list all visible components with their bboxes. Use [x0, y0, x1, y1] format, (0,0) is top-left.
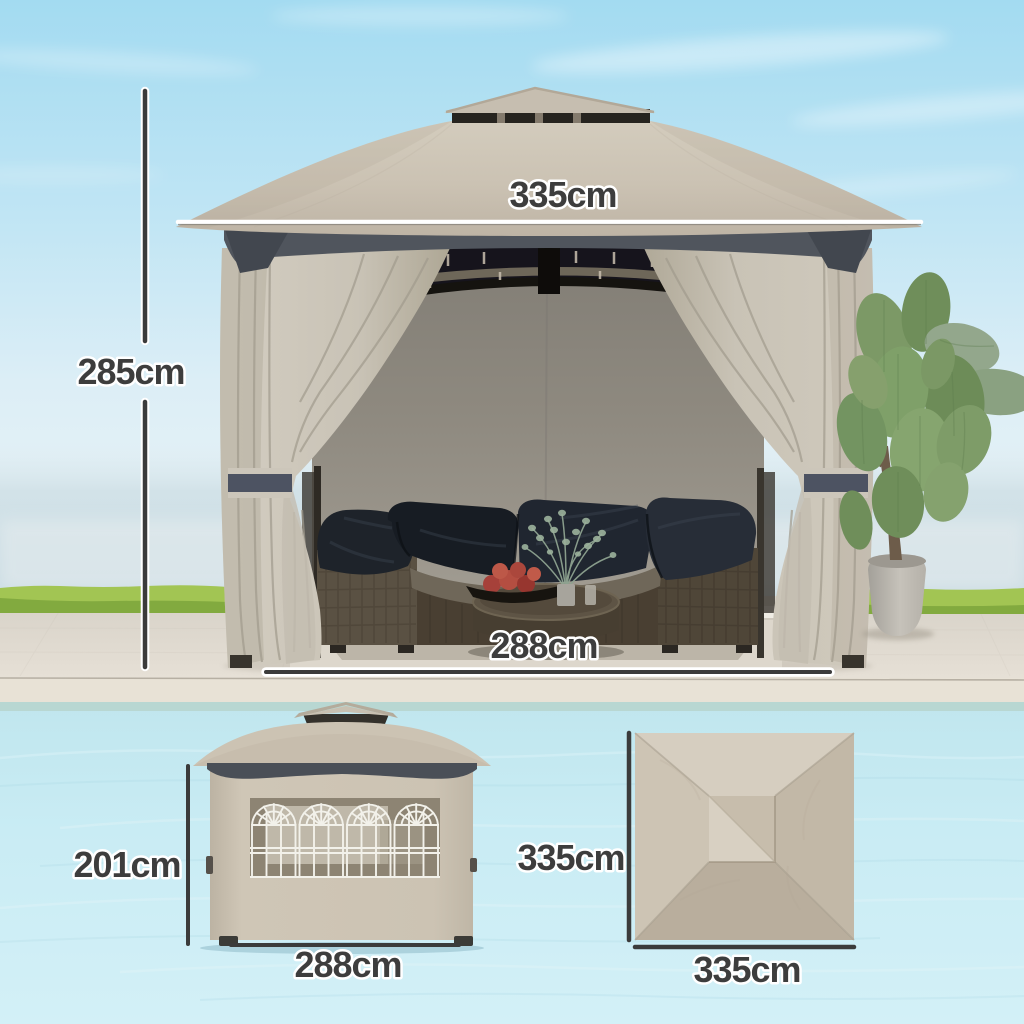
svg-text:288cm: 288cm [294, 944, 401, 985]
svg-text:335cm: 335cm [509, 174, 616, 215]
svg-text:335cm: 335cm [517, 837, 624, 878]
svg-text:285cm: 285cm [77, 351, 184, 392]
svg-text:201cm: 201cm [73, 844, 180, 885]
svg-text:288cm: 288cm [490, 625, 597, 666]
svg-text:335cm: 335cm [693, 949, 800, 990]
